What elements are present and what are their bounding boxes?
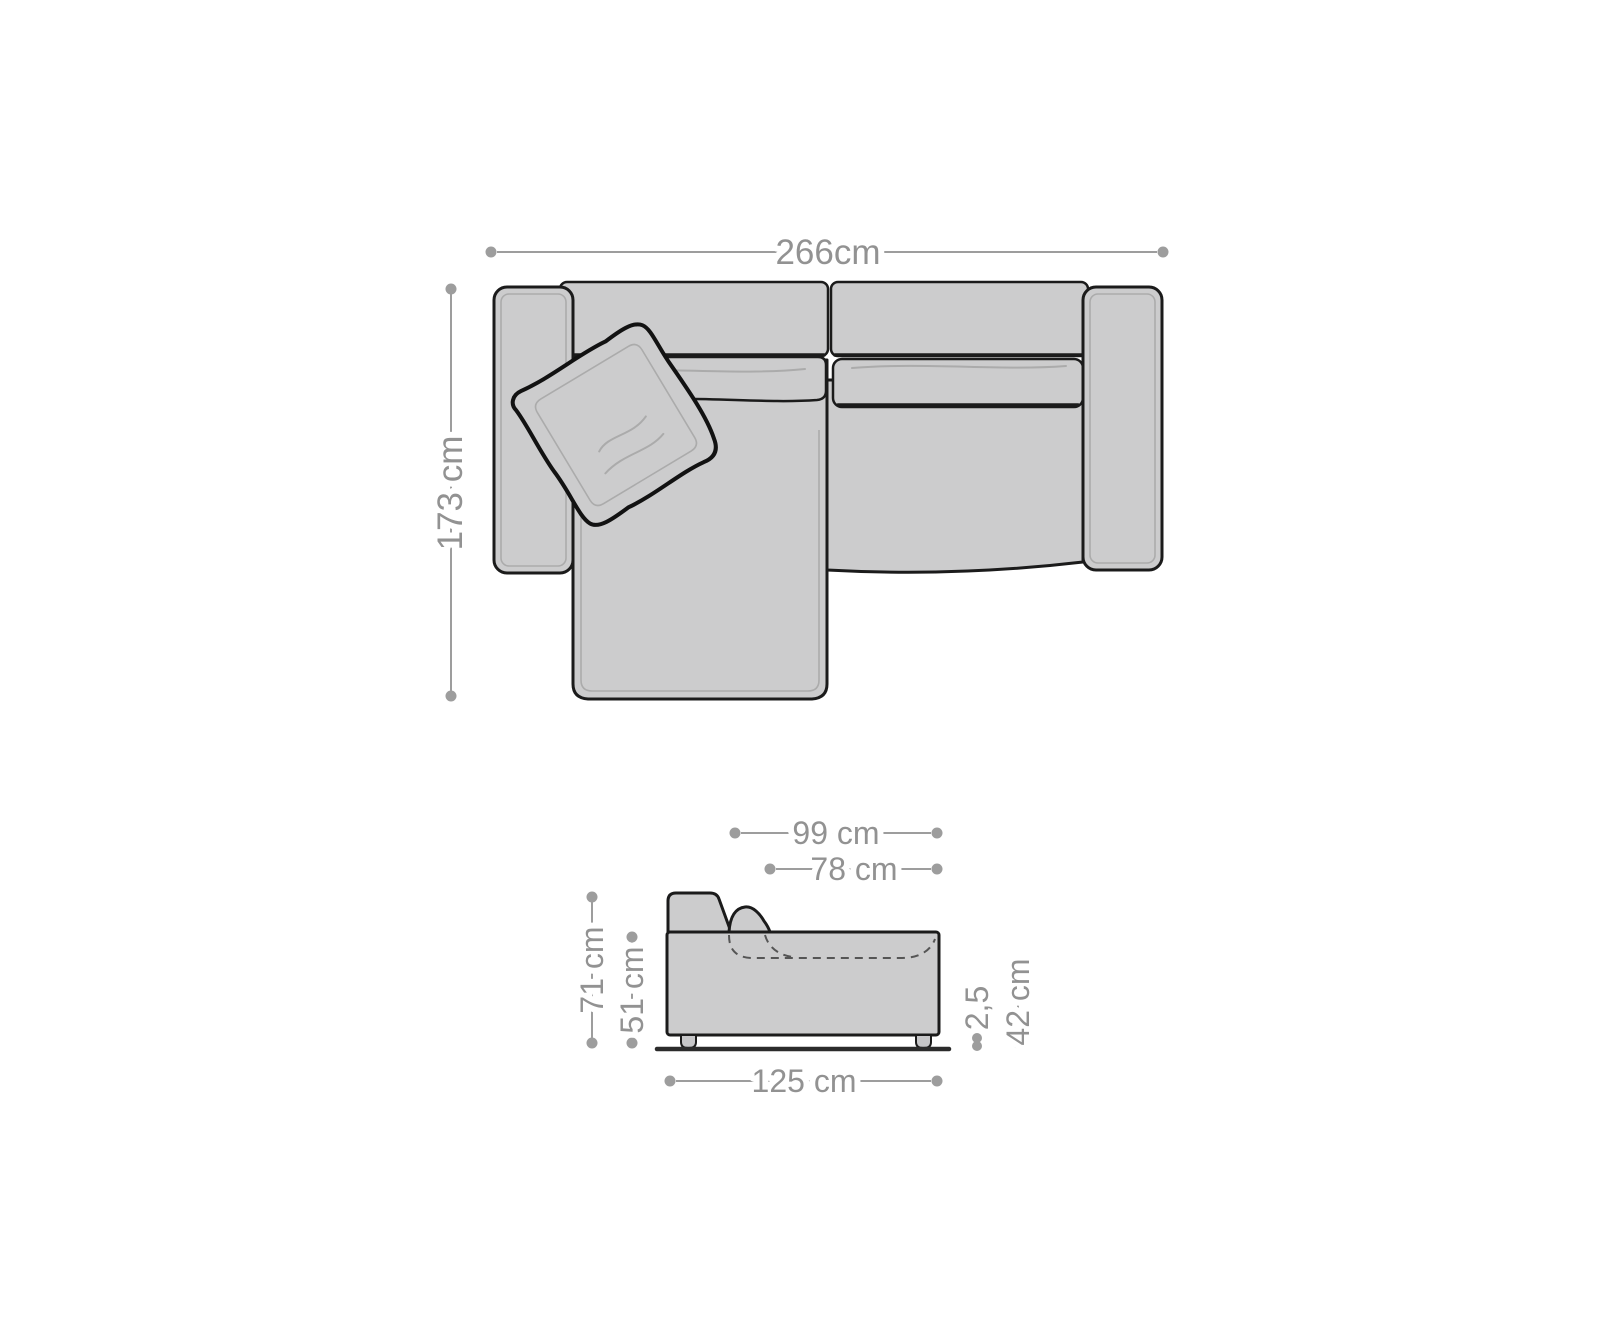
side-leg-left bbox=[681, 1035, 696, 1048]
dim-endpoint-dot bbox=[1158, 247, 1169, 258]
sofa-top-view bbox=[494, 282, 1162, 699]
dim-total-depth: 99 cm bbox=[730, 815, 943, 851]
top-view: 266cm 173 cm bbox=[431, 233, 1169, 702]
dim-endpoint-dot bbox=[627, 932, 638, 943]
side-body bbox=[667, 932, 939, 1035]
side-view: 99 cm 78 cm bbox=[574, 815, 1036, 1099]
dim-endpoint-dot bbox=[972, 1041, 982, 1051]
armrest-right bbox=[1083, 287, 1162, 570]
dim-endpoint-dot bbox=[932, 1076, 943, 1087]
dim-endpoint-dot bbox=[446, 284, 457, 295]
dim-floor-clearance: 2,5 bbox=[959, 986, 995, 1051]
dim-seat-depth-label: 78 cm bbox=[810, 851, 897, 887]
dim-total-height-label: 71 cm bbox=[574, 926, 610, 1013]
dim-seat-height: 42 cm bbox=[1000, 957, 1036, 1049]
dim-endpoint-dot bbox=[627, 1038, 638, 1049]
sofa-side-view bbox=[657, 893, 949, 1049]
dim-endpoint-dot bbox=[932, 864, 943, 875]
dim-body-height-label: 51 cm bbox=[614, 946, 650, 1033]
side-backrest bbox=[668, 893, 731, 932]
dim-endpoint-dot bbox=[486, 247, 497, 258]
dim-endpoint-dot bbox=[765, 864, 776, 875]
dim-overall-depth-label: 173 cm bbox=[431, 436, 470, 551]
dim-body-height: 51 cm bbox=[614, 932, 650, 1049]
dim-endpoint-dot bbox=[730, 828, 741, 839]
dim-total-height: 71 cm bbox=[574, 892, 610, 1049]
product-dimension-diagram: 266cm 173 cm bbox=[0, 0, 1600, 1333]
diagram-svg: 266cm 173 cm bbox=[0, 0, 1600, 1333]
seat-platform-right bbox=[827, 380, 1083, 572]
dim-floor-clearance-label: 2,5 bbox=[959, 986, 995, 1030]
backrest-cushion-right bbox=[831, 282, 1088, 356]
dim-overall-depth: 173 cm bbox=[431, 284, 470, 702]
dim-overall-width: 266cm bbox=[486, 233, 1169, 272]
side-leg-right bbox=[916, 1035, 931, 1048]
dim-total-depth-label: 99 cm bbox=[792, 815, 879, 851]
dim-base-length-label: 125 cm bbox=[752, 1063, 857, 1099]
dim-endpoint-dot bbox=[932, 828, 943, 839]
dim-endpoint-dot bbox=[446, 691, 457, 702]
dim-endpoint-dot bbox=[587, 892, 598, 903]
side-pillow bbox=[729, 907, 770, 932]
armrest-right-body bbox=[1083, 287, 1162, 570]
dim-endpoint-dot bbox=[665, 1076, 676, 1087]
dim-overall-width-label: 266cm bbox=[775, 233, 880, 272]
dim-base-length: 125 cm bbox=[665, 1063, 943, 1099]
dim-seat-depth: 78 cm bbox=[765, 851, 943, 887]
dim-endpoint-dot bbox=[587, 1038, 598, 1049]
dim-seat-height-label: 42 cm bbox=[1000, 958, 1036, 1045]
